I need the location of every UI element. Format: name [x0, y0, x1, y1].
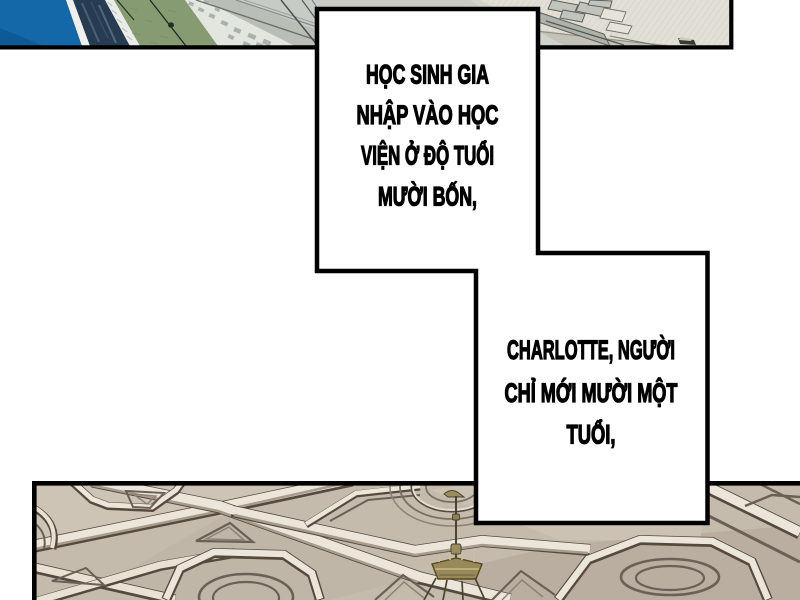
- svg-text:NHẬP VÀO HỌC: NHẬP VÀO HỌC: [357, 99, 499, 130]
- svg-text:CHỈ MỚI MƯỜI MỘT: CHỈ MỚI MƯỜI MỘT: [505, 376, 678, 408]
- svg-text:HỌC SINH GIA: HỌC SINH GIA: [366, 60, 489, 90]
- svg-text:VIỆN Ở ĐỘ TUỔI: VIỆN Ở ĐỘ TUỔI: [361, 139, 494, 171]
- svg-text:TUỔI,: TUỔI,: [567, 419, 616, 450]
- svg-text:MƯỜI BỐN,: MƯỜI BỐN,: [378, 180, 477, 212]
- svg-text:CHARLOTTE, NGƯỜI: CHARLOTTE, NGƯỜI: [507, 334, 675, 365]
